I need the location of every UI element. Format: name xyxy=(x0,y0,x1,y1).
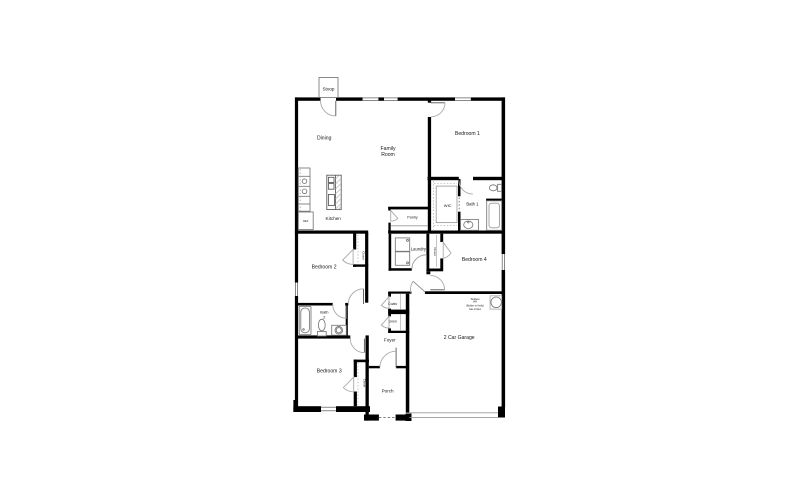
svg-text:Linen: Linen xyxy=(389,320,397,324)
svg-text:(Builder to Verify): (Builder to Verify) xyxy=(466,304,484,307)
svg-text:Dining: Dining xyxy=(317,135,332,141)
svg-text:Bath 1: Bath 1 xyxy=(466,201,479,206)
svg-text:Porch: Porch xyxy=(382,388,394,393)
svg-text:Coats: Coats xyxy=(388,302,397,306)
svg-text:Closet: Closet xyxy=(362,379,366,388)
svg-text:Bedroom 3: Bedroom 3 xyxy=(317,368,342,374)
svg-text:2 Car Garage: 2 Car Garage xyxy=(444,335,475,341)
svg-text:Kitchen: Kitchen xyxy=(326,216,342,221)
svg-text:Gas or Elec: Gas or Elec xyxy=(469,308,482,311)
svg-text:REF: REF xyxy=(303,219,309,223)
svg-text:Family: Family xyxy=(381,146,396,152)
svg-text:Bedroom 1: Bedroom 1 xyxy=(455,131,480,137)
svg-text:Bedroom 4: Bedroom 4 xyxy=(462,257,487,263)
svg-text:Tankless: Tankless xyxy=(471,299,481,301)
svg-text:Stoop: Stoop xyxy=(322,87,334,92)
svg-text:Foyer: Foyer xyxy=(384,338,396,343)
svg-text:Closet: Closet xyxy=(361,251,365,260)
svg-text:WH: WH xyxy=(473,302,477,304)
svg-text:Laundry: Laundry xyxy=(411,246,427,251)
svg-text:Pantry: Pantry xyxy=(407,215,418,219)
svg-text:Closet: Closet xyxy=(433,247,437,256)
svg-text:WIC: WIC xyxy=(444,203,452,208)
svg-text:Bedroom 2: Bedroom 2 xyxy=(312,264,337,270)
svg-text:Room: Room xyxy=(381,152,395,158)
